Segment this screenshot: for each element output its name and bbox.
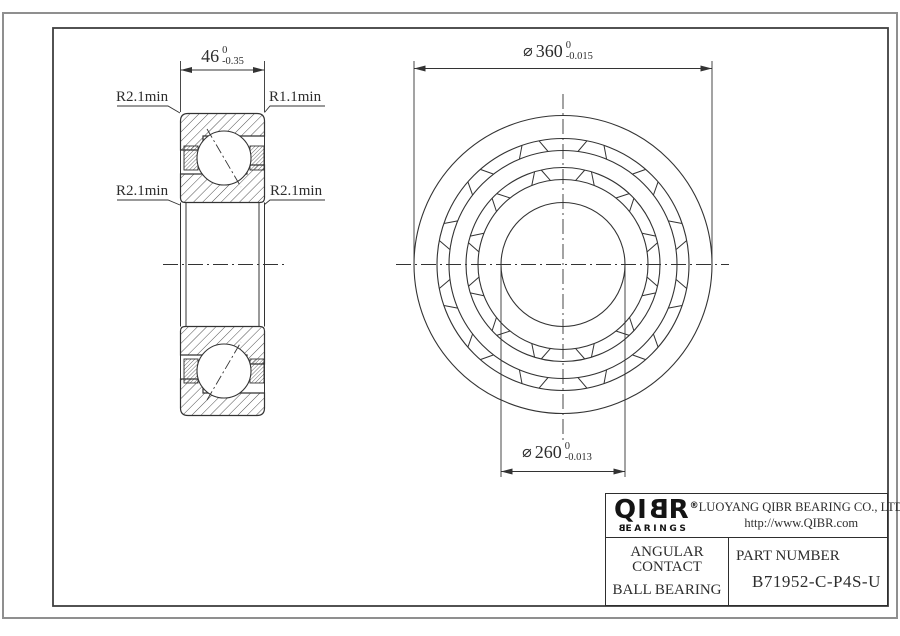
pocket-edge-line [578, 141, 587, 152]
pocket-edge-line [497, 194, 510, 198]
pocket-edge-line [470, 293, 484, 296]
diameter-symbol: ⌀ [522, 444, 532, 460]
title-block-detail-row: ANGULAR CONTACT BALL BEARING PART NUMBER… [606, 538, 887, 605]
qibr-logo: QIBR® [614, 497, 699, 523]
company-name: LUOYANG QIBR BEARING CO., LTD [699, 499, 900, 515]
pocket-edge-line [630, 198, 634, 211]
ball [197, 344, 251, 398]
od-tolerance: 0 -0.015 [566, 40, 593, 62]
pocket-edge-line [647, 243, 657, 252]
pocket-edge-line [616, 331, 629, 335]
pocket-edge-line [480, 355, 493, 360]
pocket-edge-line [541, 170, 550, 180]
pocket-edge-line [632, 169, 645, 174]
pocket-edge-line [616, 194, 629, 198]
pocket-edge-line [497, 331, 510, 335]
ball [197, 131, 251, 185]
pocket-edge-line [444, 221, 458, 224]
pocket-edge-line [676, 241, 687, 250]
pocket-edge-line [439, 241, 450, 250]
section-top-assembly [181, 114, 265, 203]
product-line1: ANGULAR CONTACT [606, 545, 728, 575]
part-number-value: B71952-C-P4S-U [752, 573, 887, 590]
pocket-edge-line [578, 378, 587, 389]
bore-tolerance: 0 -0.013 [565, 441, 592, 463]
width-value: 46 [201, 47, 219, 65]
bore-diameter-dimension: ⌀260 0 -0.013 [462, 441, 652, 463]
width-dimension-lines [181, 61, 265, 112]
outer-diameter-dimension: ⌀360 0 -0.015 [463, 40, 653, 62]
cage-section [184, 359, 198, 383]
title-block: QIBR® BEARINGS LUOYANG QIBR BEARING CO.,… [605, 493, 888, 606]
pocket-edge-line [439, 279, 450, 288]
pocket-edge-line [668, 221, 682, 224]
pocket-edge-line [469, 277, 479, 286]
diameter-symbol: ⌀ [523, 43, 533, 59]
logo-cell: QIBR® BEARINGS [606, 494, 699, 537]
pocket-edge-line [604, 370, 607, 384]
pocket-edge-line [642, 233, 656, 236]
product-line2: BALL BEARING [606, 583, 728, 598]
section-bottom-assembly [181, 327, 265, 416]
section-view [117, 61, 325, 416]
pocket-edge-line [492, 198, 496, 211]
pocket-edge-line [444, 306, 458, 309]
pocket-edge-line [480, 169, 493, 174]
pocket-edge-line [468, 334, 473, 347]
pocket-edge-line [468, 182, 473, 195]
registered-mark: ® [690, 501, 699, 511]
pocket-edge-line [668, 306, 682, 309]
radius-label-top-right: R1.1min [269, 90, 321, 105]
pocket-edge-line [653, 182, 658, 195]
front-view [396, 61, 729, 477]
pocket-edge-line [576, 349, 585, 359]
pocket-edge-line [604, 145, 607, 159]
part-number-cell: PART NUMBER B71952-C-P4S-U [729, 538, 887, 605]
pocket-edge-line [591, 344, 594, 358]
pocket-edge-line [539, 141, 548, 152]
pocket-edge-line [532, 344, 535, 358]
pocket-edge-line [541, 349, 550, 359]
pocket-edge-line [676, 279, 687, 288]
pocket-edge-line [469, 243, 479, 252]
cage-section [250, 146, 264, 170]
cage-section [250, 359, 264, 383]
logo-wordmark: BEARINGS [616, 524, 699, 534]
pocket-edge-line [591, 172, 594, 186]
pocket-edge-line [642, 293, 656, 296]
bore-value: 260 [535, 443, 562, 461]
width-tolerance: 0 -0.35 [222, 45, 244, 67]
pocket-edge-line [539, 378, 548, 389]
pocket-edge-line [519, 145, 522, 159]
drawing-sheet: 46 0 -0.35 ⌀360 0 -0.015 ⌀260 0 -0.013 R… [0, 0, 900, 636]
pocket-edge-line [492, 317, 496, 330]
pocket-edge-line [532, 172, 535, 186]
width-dimension: 46 0 -0.35 [180, 45, 265, 67]
pocket-edge-line [470, 233, 484, 236]
radius-label-top-left: R2.1min [116, 90, 168, 105]
pocket-edge-line [653, 334, 658, 347]
pocket-edge-line [632, 355, 645, 360]
cage-section [184, 146, 198, 170]
radius-label-mid-left: R2.1min [116, 184, 168, 199]
product-type-cell: ANGULAR CONTACT BALL BEARING [606, 538, 729, 605]
pocket-edge-line [576, 170, 585, 180]
company-cell: LUOYANG QIBR BEARING CO., LTD http://www… [699, 494, 900, 537]
pocket-edge-line [647, 277, 657, 286]
title-block-header-row: QIBR® BEARINGS LUOYANG QIBR BEARING CO.,… [606, 494, 887, 538]
od-value: 360 [536, 42, 563, 60]
radius-label-mid-right: R2.1min [270, 184, 322, 199]
pocket-edge-line [519, 370, 522, 384]
part-number-label: PART NUMBER [736, 549, 887, 564]
pocket-edge-line [630, 317, 634, 330]
company-website: http://www.QIBR.com [699, 515, 900, 531]
